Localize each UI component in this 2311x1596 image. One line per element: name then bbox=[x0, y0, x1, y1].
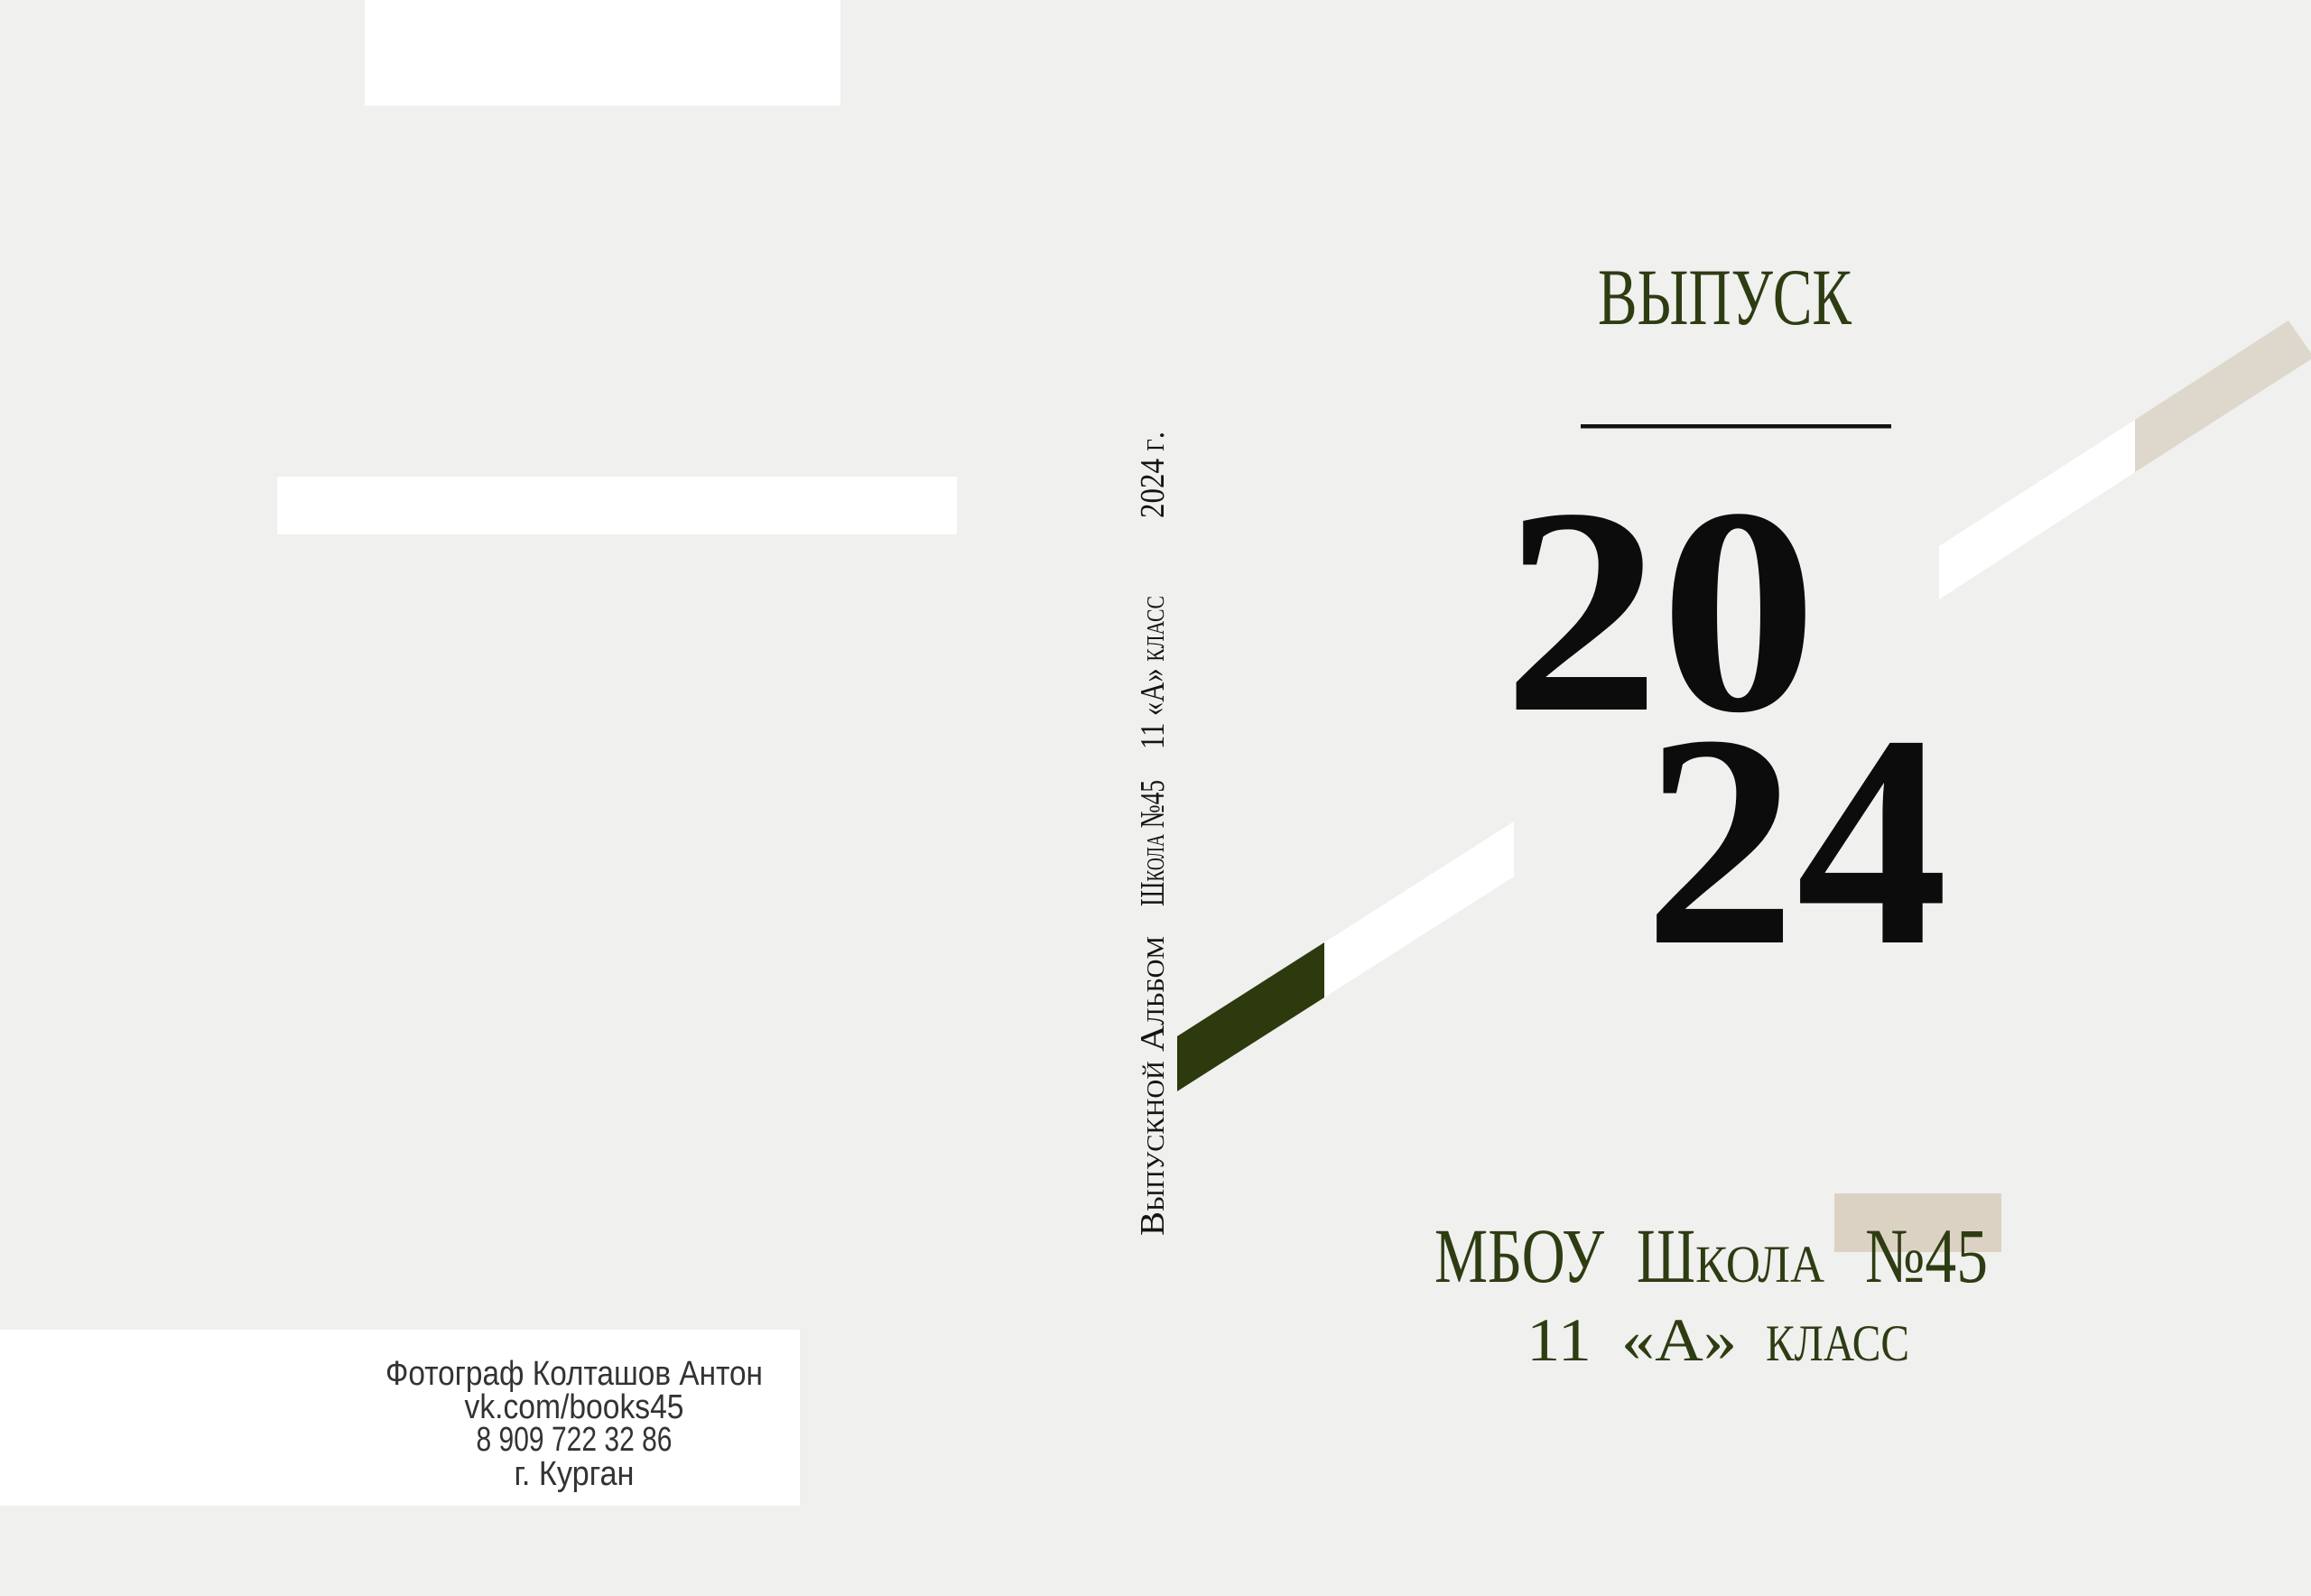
svg-text:Школа №45: Школа №45 bbox=[1134, 780, 1172, 906]
svg-text:Фотограф Колташов Антон: Фотограф Колташов Антон bbox=[385, 1355, 763, 1393]
svg-text:11 «А» класс: 11 «А» класс bbox=[1134, 596, 1172, 749]
svg-text:2024 г.: 2024 г. bbox=[1134, 431, 1172, 518]
svg-text:КОЛА: КОЛА bbox=[1695, 1235, 1824, 1294]
svg-text:«А»: «А» bbox=[1621, 1305, 1737, 1374]
svg-text:Ш: Ш bbox=[1637, 1212, 1695, 1299]
svg-text:11: 11 bbox=[1527, 1305, 1592, 1374]
svg-text:ВЫПУСК: ВЫПУСК bbox=[1598, 254, 1852, 342]
svg-text:8 909 722 32 86: 8 909 722 32 86 bbox=[477, 1421, 673, 1459]
svg-text:МБОУ: МБОУ bbox=[1434, 1212, 1604, 1299]
svg-text:г. Курган: г. Курган bbox=[515, 1455, 635, 1493]
svg-text:24: 24 bbox=[1644, 673, 1948, 1008]
svg-text:№45: №45 bbox=[1865, 1212, 1988, 1299]
svg-text:Выпускной Альбом: Выпускной Альбом bbox=[1134, 936, 1172, 1236]
svg-text:КЛАСС: КЛАСС bbox=[1766, 1315, 1909, 1372]
